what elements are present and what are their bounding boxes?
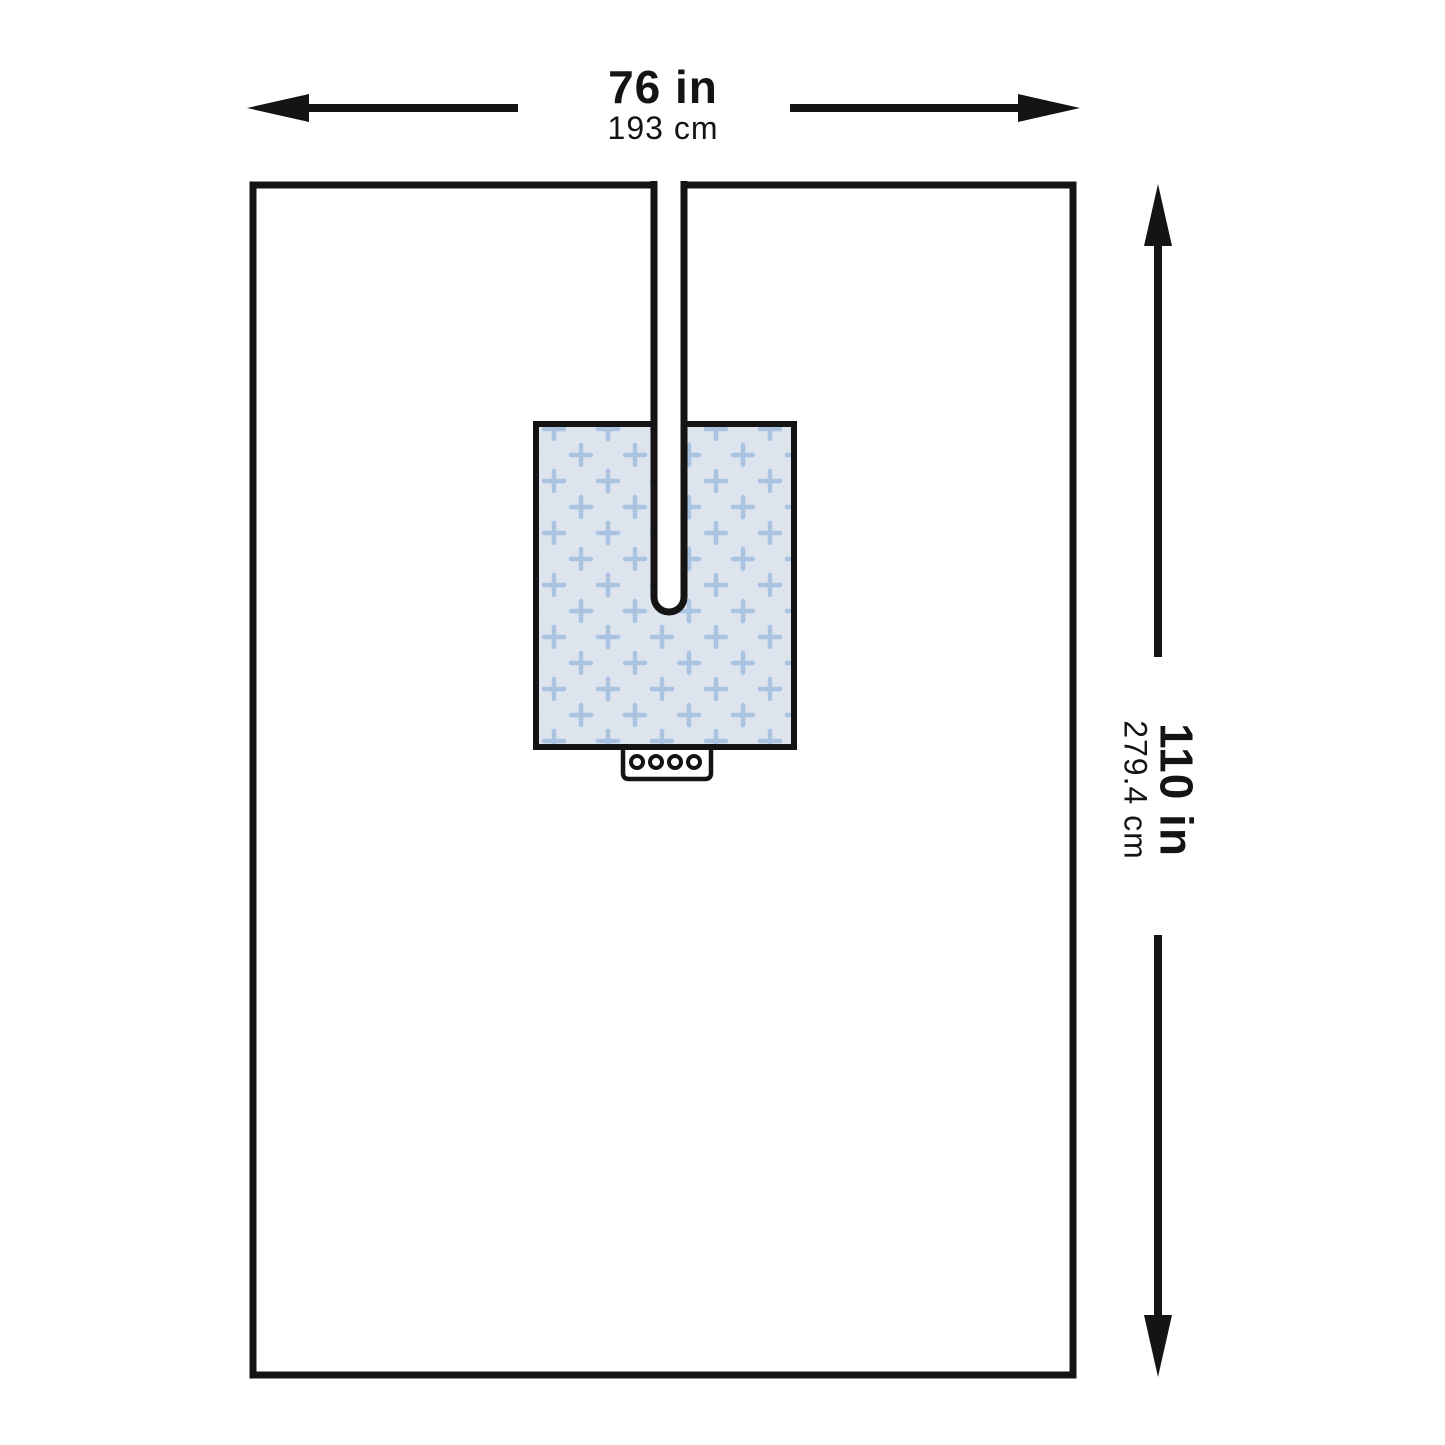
height-inches-value: 110 in xyxy=(1152,720,1199,860)
tab-hole xyxy=(669,756,681,768)
height-arrow-bottom-head xyxy=(1144,1315,1172,1377)
width-dimension-label: 76 in 193 cm xyxy=(608,64,719,147)
drape-dimension-diagram: 76 in 193 cm 110 in 279.4 cm xyxy=(0,0,1445,1445)
drape-split-slit xyxy=(654,181,684,612)
tab-hole xyxy=(631,756,643,768)
width-arrow-left-head xyxy=(247,94,309,122)
tab-hole xyxy=(650,756,662,768)
height-dimension-label: 110 in 279.4 cm xyxy=(1117,720,1200,860)
width-cm-value: 193 cm xyxy=(608,111,719,147)
height-cm-value: 279.4 cm xyxy=(1117,720,1153,860)
width-arrow-right-head xyxy=(1018,94,1080,122)
width-inches-value: 76 in xyxy=(608,64,719,111)
height-arrow-top-head xyxy=(1144,184,1172,246)
tab-hole xyxy=(688,756,700,768)
diagram-artwork xyxy=(0,0,1445,1445)
